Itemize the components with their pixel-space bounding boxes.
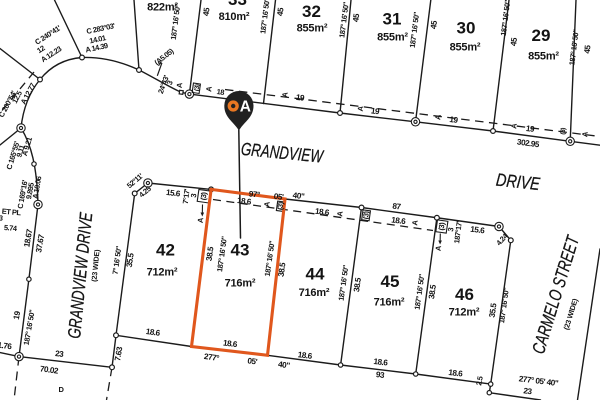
svg-text:855m²: 855m² xyxy=(450,42,481,54)
svg-text:33: 33 xyxy=(228,0,247,9)
svg-text:(3): (3) xyxy=(194,84,202,92)
svg-text:A: A xyxy=(240,99,251,116)
svg-text:18.6: 18.6 xyxy=(314,207,330,218)
svg-text:31: 31 xyxy=(383,10,402,29)
svg-text:(3): (3) xyxy=(560,127,568,135)
svg-text:05': 05' xyxy=(273,192,284,202)
svg-text:46: 46 xyxy=(455,285,474,304)
svg-text:716m²: 716m² xyxy=(225,278,256,290)
svg-text:40": 40" xyxy=(292,191,305,201)
svg-text:716m²: 716m² xyxy=(374,297,405,309)
svg-text:43: 43 xyxy=(231,241,250,260)
svg-text:18.6: 18.6 xyxy=(448,368,464,379)
svg-text:855m²: 855m² xyxy=(377,32,408,44)
svg-text:29: 29 xyxy=(532,26,551,45)
svg-text:15.6: 15.6 xyxy=(166,188,182,199)
svg-text:32: 32 xyxy=(302,2,321,21)
svg-text:45: 45 xyxy=(381,272,400,291)
svg-text:810m²: 810m² xyxy=(219,11,250,23)
svg-text:30: 30 xyxy=(457,19,476,38)
svg-text:855m²: 855m² xyxy=(528,51,559,63)
svg-text:42: 42 xyxy=(156,241,175,260)
svg-text:18.6: 18.6 xyxy=(297,350,313,361)
svg-text:1.76: 1.76 xyxy=(0,341,13,352)
svg-text:05': 05' xyxy=(247,356,258,366)
svg-text:18: 18 xyxy=(216,87,225,97)
svg-text:40": 40" xyxy=(278,360,291,371)
svg-text:855m²: 855m² xyxy=(297,23,328,35)
svg-text:18.6: 18.6 xyxy=(391,215,407,226)
svg-text:44: 44 xyxy=(306,265,325,284)
svg-text:15.6: 15.6 xyxy=(470,225,486,236)
svg-text:712m²: 712m² xyxy=(449,307,480,319)
svg-text:ET PL: ET PL xyxy=(1,207,21,218)
svg-text:716m²: 716m² xyxy=(299,287,330,299)
svg-text:5.74: 5.74 xyxy=(4,223,19,233)
svg-text:18.6: 18.6 xyxy=(236,196,252,207)
svg-text:712m²: 712m² xyxy=(147,267,178,279)
svg-text:18.6: 18.6 xyxy=(222,338,238,349)
svg-text:18.6: 18.6 xyxy=(373,357,389,368)
